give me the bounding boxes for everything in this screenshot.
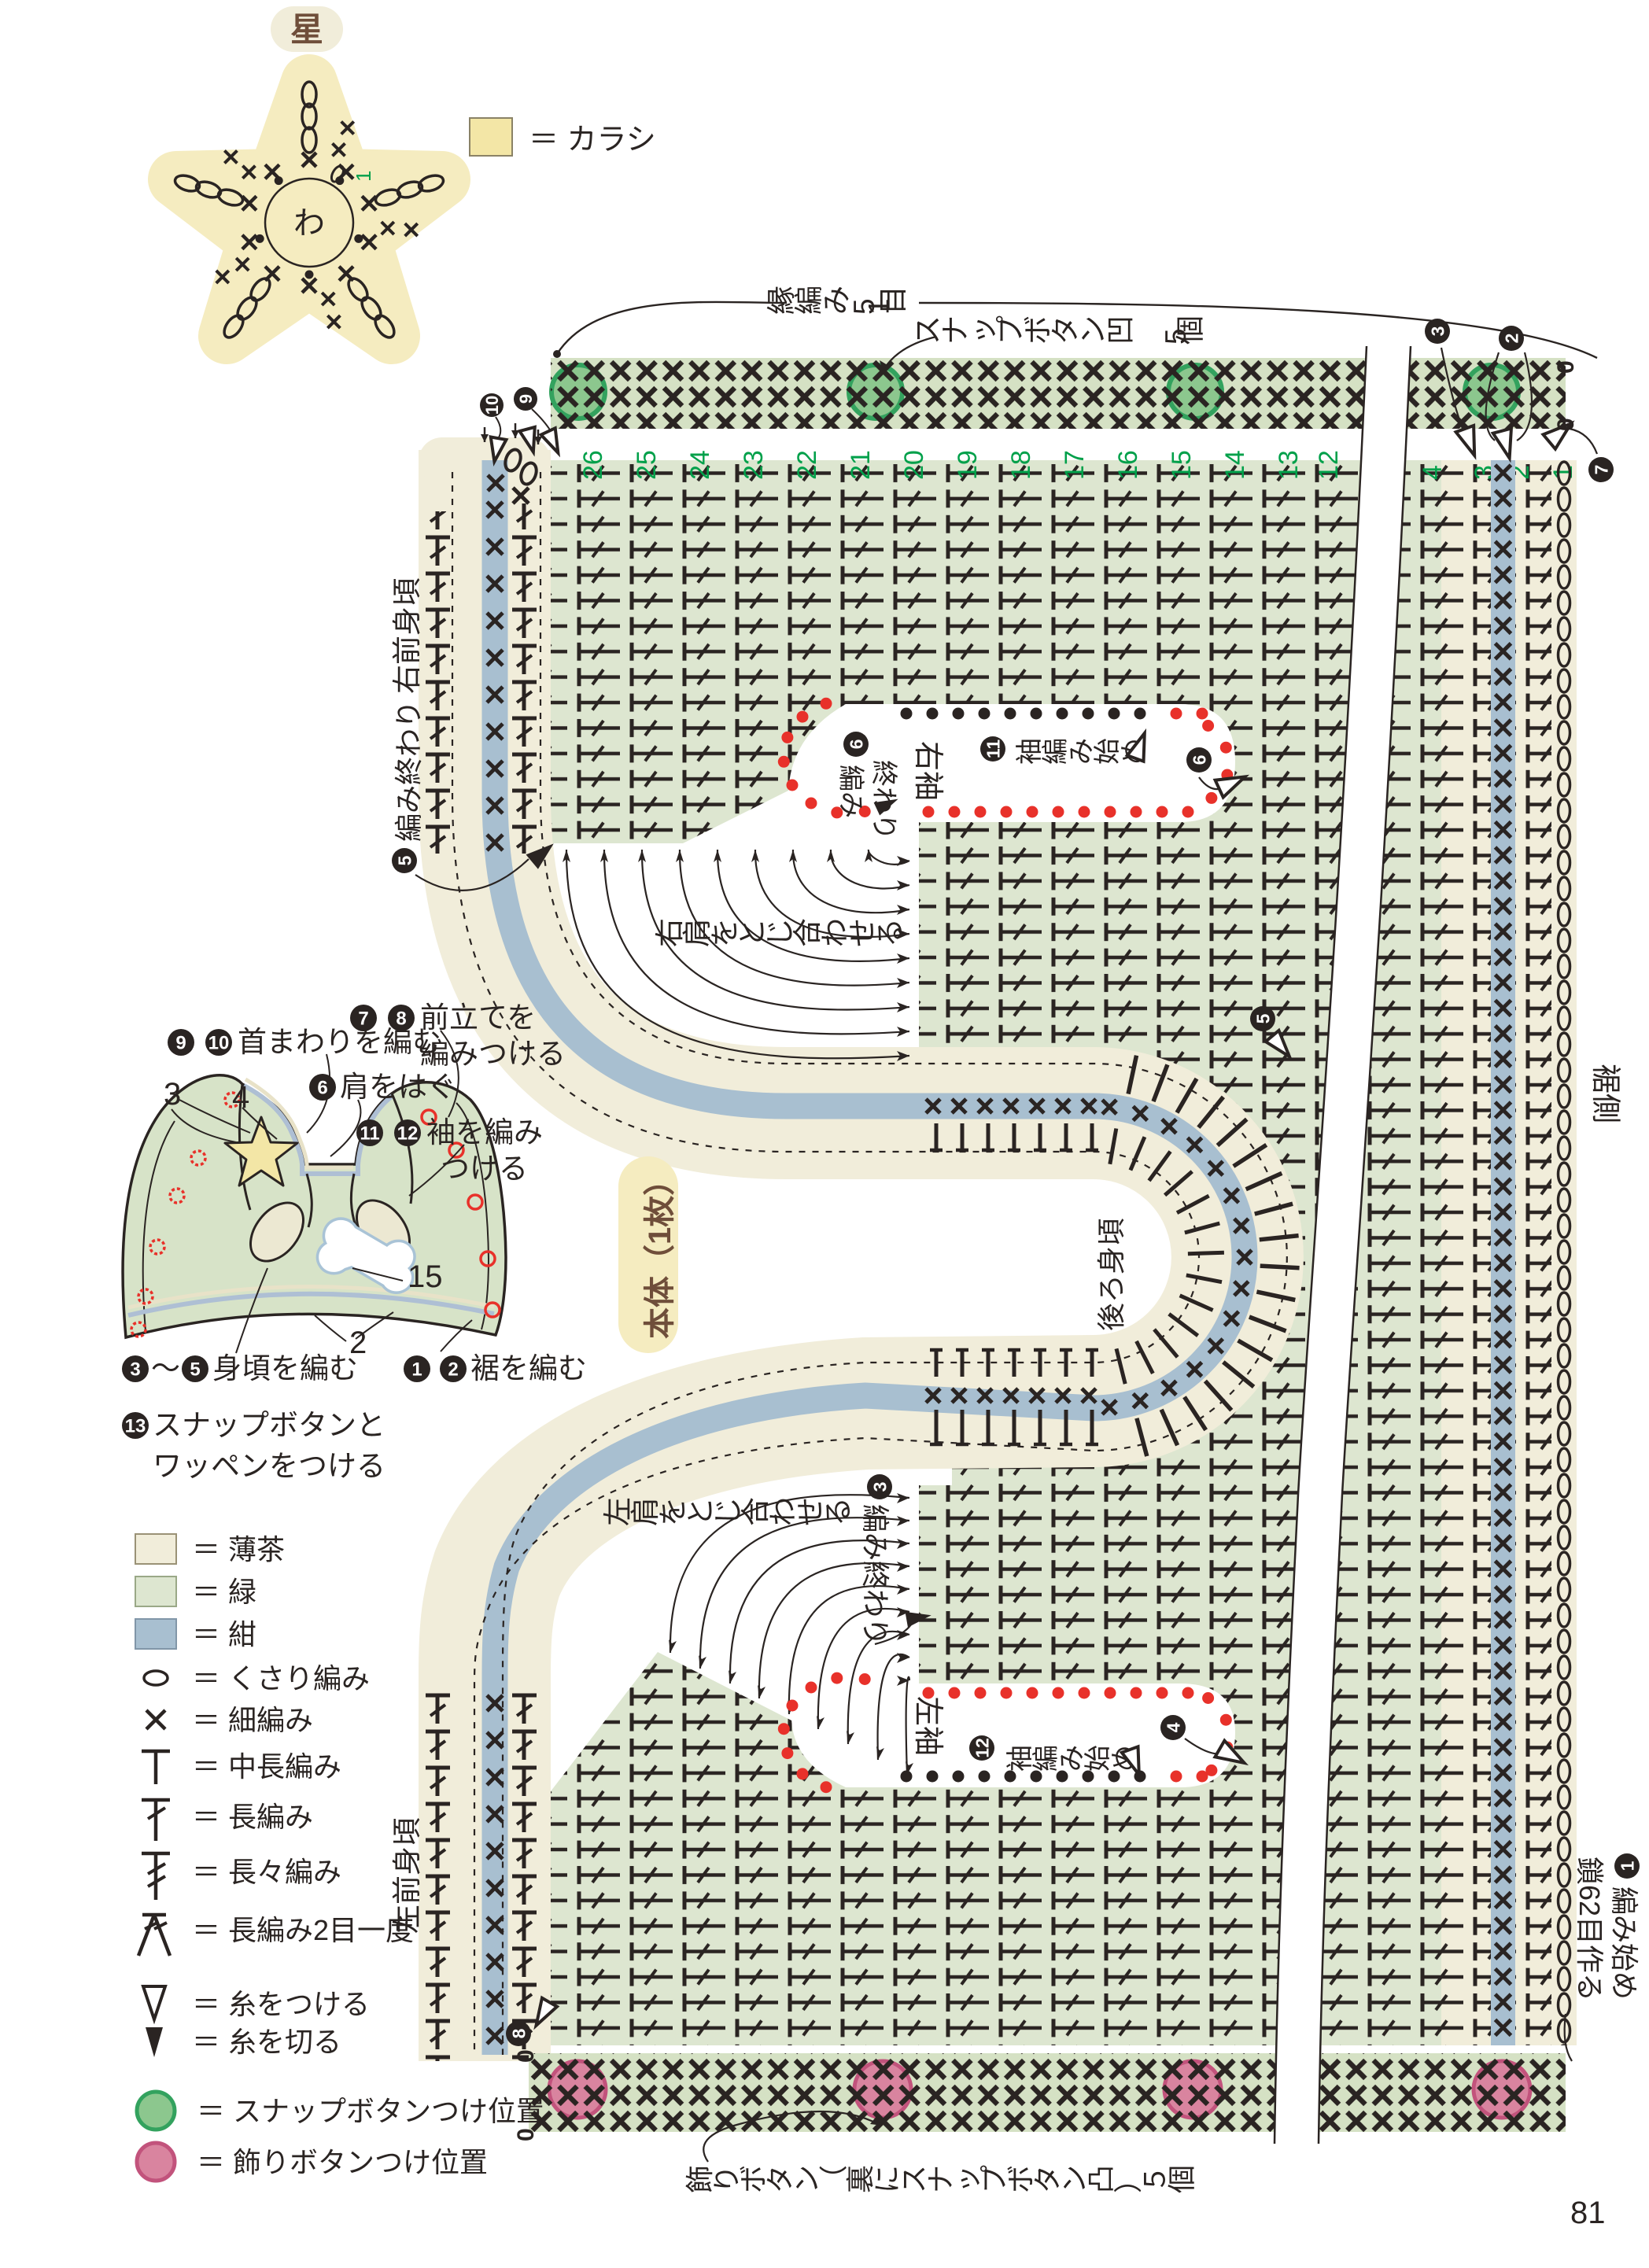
svg-text:10: 10 xyxy=(482,396,502,415)
svg-text:3: 3 xyxy=(164,1077,181,1112)
svg-text:6: 6 xyxy=(1189,755,1209,765)
svg-text:本体（1枚）: 本体（1枚） xyxy=(643,1164,677,1339)
svg-text:3: 3 xyxy=(869,1482,890,1492)
svg-text:0: 0 xyxy=(1553,360,1579,374)
svg-text:7: 7 xyxy=(358,1009,368,1030)
svg-text:18: 18 xyxy=(1006,450,1036,480)
svg-text:3: 3 xyxy=(1427,326,1448,337)
svg-text:＝ 長編み2目一度: ＝ 長編み2目一度 xyxy=(192,1914,414,1946)
svg-text:〜: 〜 xyxy=(151,1352,180,1385)
svg-text:スナップボタンと: スナップボタンと xyxy=(153,1409,386,1441)
svg-text:＝ くさり編み: ＝ くさり編み xyxy=(192,1662,370,1695)
svg-text:＝ 細編み: ＝ 細編み xyxy=(192,1704,313,1736)
svg-text:＝ 中長編み: ＝ 中長編み xyxy=(192,1750,341,1783)
svg-text:10: 10 xyxy=(208,1033,230,1054)
svg-text:＝ 長々編み: ＝ 長々編み xyxy=(192,1856,341,1888)
svg-text:前立てを: 前立てを xyxy=(420,1001,536,1034)
svg-text:編み始め: 編み始め xyxy=(1608,1886,1640,2000)
svg-text:編みつける: 編みつける xyxy=(420,1038,566,1070)
svg-text:右前身頃: 右前身頃 xyxy=(391,577,423,694)
svg-text:飾りボタン（裏にスナップボタン凸）５個: 飾りボタン（裏にスナップボタン凸）５個 xyxy=(684,2165,1197,2193)
svg-text:＝ カラシ: ＝ カラシ xyxy=(529,124,656,157)
svg-text:19: 19 xyxy=(953,450,983,480)
svg-text:6: 6 xyxy=(846,739,866,750)
svg-text:裾を編む: 裾を編む xyxy=(470,1352,587,1385)
svg-text:0: 0 xyxy=(513,2128,539,2141)
svg-text:1: 1 xyxy=(1617,1860,1637,1871)
svg-text:編み終わり: 編み終わり xyxy=(859,1504,891,1646)
svg-text:21: 21 xyxy=(846,450,876,480)
svg-text:9: 9 xyxy=(175,1033,186,1054)
svg-text:3: 3 xyxy=(130,1359,140,1381)
svg-text:4: 4 xyxy=(1418,465,1448,480)
svg-text:5: 5 xyxy=(190,1359,200,1381)
svg-text:＝ 長編み: ＝ 長編み xyxy=(192,1801,313,1833)
svg-text:20: 20 xyxy=(899,450,929,480)
svg-text:11: 11 xyxy=(983,739,1003,759)
svg-text:縁編み51目: 縁編み51目 xyxy=(765,286,909,315)
svg-text:＝ 薄茶: ＝ 薄茶 xyxy=(192,1533,285,1565)
svg-text:2: 2 xyxy=(448,1359,458,1381)
svg-text:24: 24 xyxy=(685,450,715,480)
svg-text:ワッペンをつける: ワッペンをつける xyxy=(153,1450,386,1482)
svg-text:13: 13 xyxy=(1274,450,1304,480)
svg-text:裾側: 裾側 xyxy=(1588,1064,1621,1123)
svg-text:肩をはぐ: 肩をはぐ xyxy=(340,1071,456,1103)
svg-text:26: 26 xyxy=(578,450,608,480)
svg-text:＝ 緑: ＝ 緑 xyxy=(192,1576,256,1608)
svg-text:12: 12 xyxy=(972,1738,992,1758)
svg-text:首まわりを編む: 首まわりを編む xyxy=(238,1026,441,1058)
svg-text:8: 8 xyxy=(396,1009,406,1030)
svg-text:後ろ身頃: 後ろ身頃 xyxy=(1095,1218,1127,1331)
svg-text:22: 22 xyxy=(792,450,822,480)
svg-text:＝ 糸をつける: ＝ 糸をつける xyxy=(192,1988,370,2020)
svg-text:袖を編み: 袖を編み xyxy=(426,1116,543,1149)
svg-text:右袖: 右袖 xyxy=(911,741,944,801)
svg-text:11: 11 xyxy=(360,1123,379,1145)
svg-text:15: 15 xyxy=(408,1259,443,1294)
svg-text:1: 1 xyxy=(352,171,375,182)
svg-text:＝ スナップボタンつけ位置: ＝ スナップボタンつけ位置 xyxy=(197,2095,544,2127)
svg-text:23: 23 xyxy=(739,450,769,480)
svg-text:星: 星 xyxy=(290,11,323,48)
svg-text:＝ 飾りボタンつけ位置: ＝ 飾りボタンつけ位置 xyxy=(197,2146,488,2178)
svg-text:左肩をとじ合わせる: 左肩をとじ合わせる xyxy=(602,1498,854,1526)
svg-text:鎖62目作る: 鎖62目作る xyxy=(1573,1857,1606,2001)
svg-text:7: 7 xyxy=(1591,465,1611,475)
svg-text:2: 2 xyxy=(1501,334,1522,344)
svg-text:＝ 紺: ＝ 紺 xyxy=(192,1618,256,1650)
svg-text:5: 5 xyxy=(1252,1013,1273,1023)
svg-text:編み: 編み xyxy=(836,765,865,818)
svg-text:身頃を編む: 身頃を編む xyxy=(212,1352,358,1385)
svg-text:6: 6 xyxy=(317,1078,327,1099)
svg-text:13: 13 xyxy=(125,1416,146,1437)
svg-text:5: 5 xyxy=(394,855,415,865)
svg-text:編み終わり: 編み終わり xyxy=(393,700,425,842)
svg-text:右肩をとじ合わせる: 右肩をとじ合わせる xyxy=(654,919,906,947)
svg-text:25: 25 xyxy=(632,450,662,480)
svg-text:14: 14 xyxy=(1220,450,1250,480)
svg-text:9: 9 xyxy=(516,394,536,404)
svg-text:0: 0 xyxy=(1553,418,1579,431)
svg-text:0: 0 xyxy=(513,2049,539,2063)
svg-text:袖編み始め: 袖編み始め xyxy=(1005,1746,1139,1772)
svg-text:＝ 糸を切る: ＝ 糸を切る xyxy=(192,2026,341,2058)
svg-text:81: 81 xyxy=(1570,2196,1606,2230)
svg-text:スナップボタン凹 5個: スナップボタン凹 5個 xyxy=(912,315,1207,345)
svg-text:8: 8 xyxy=(508,2028,529,2038)
svg-text:4: 4 xyxy=(1163,1722,1183,1732)
svg-text:4: 4 xyxy=(232,1080,249,1115)
svg-text:わ: わ xyxy=(293,206,325,241)
svg-text:左袖: 左袖 xyxy=(911,1696,944,1756)
svg-text:17: 17 xyxy=(1060,450,1090,480)
svg-text:1: 1 xyxy=(411,1359,422,1381)
svg-text:16: 16 xyxy=(1113,450,1143,480)
svg-text:12: 12 xyxy=(397,1123,419,1145)
svg-text:15: 15 xyxy=(1167,450,1197,480)
svg-text:12: 12 xyxy=(1314,450,1344,480)
